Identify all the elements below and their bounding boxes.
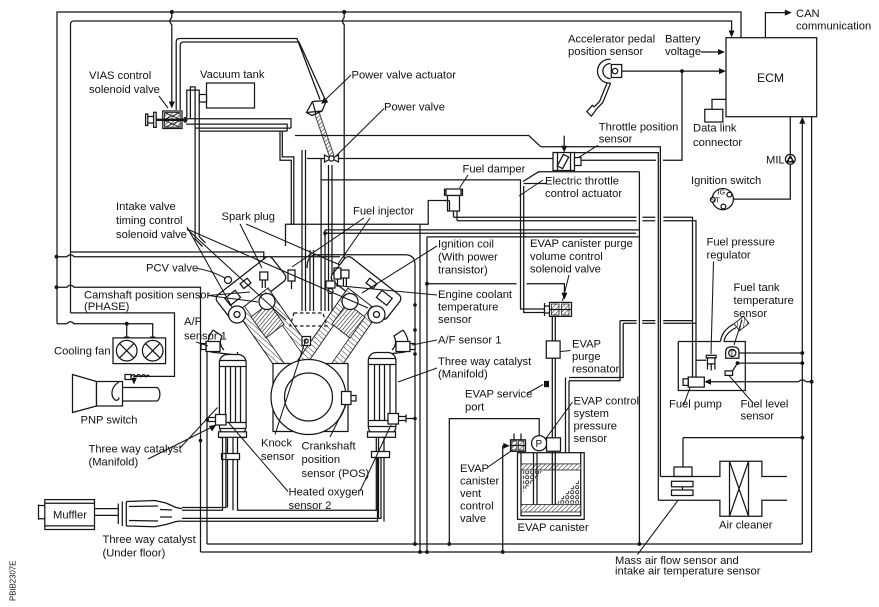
svg-text:Three way catalyst: Three way catalyst bbox=[438, 356, 532, 368]
svg-text:sensor (POS): sensor (POS) bbox=[302, 468, 370, 480]
svg-text:Fuel tank: Fuel tank bbox=[734, 282, 780, 294]
svg-text:solenoid valve: solenoid valve bbox=[89, 84, 160, 96]
svg-text:EVAP: EVAP bbox=[460, 463, 489, 475]
svg-text:regulator: regulator bbox=[707, 250, 751, 262]
svg-text:Throttle position: Throttle position bbox=[599, 122, 679, 134]
svg-text:Camshaft position sensor: Camshaft position sensor bbox=[84, 290, 211, 302]
svg-text:control actuator: control actuator bbox=[545, 188, 622, 200]
svg-text:EVAP canister purge: EVAP canister purge bbox=[530, 238, 633, 250]
svg-text:CAN: CAN bbox=[796, 8, 820, 20]
svg-text:(PHASE): (PHASE) bbox=[84, 301, 130, 313]
svg-text:sensor 2: sensor 2 bbox=[289, 500, 332, 512]
svg-text:Fuel damper: Fuel damper bbox=[463, 164, 526, 176]
svg-text:Heated oxygen: Heated oxygen bbox=[289, 487, 364, 499]
svg-text:port: port bbox=[465, 402, 485, 414]
svg-text:A/F sensor 1: A/F sensor 1 bbox=[438, 335, 501, 347]
svg-text:pressure: pressure bbox=[574, 421, 618, 433]
svg-text:A/F: A/F bbox=[184, 316, 202, 328]
svg-text:position: position bbox=[302, 454, 341, 466]
svg-text:EVAP canister: EVAP canister bbox=[518, 522, 589, 534]
svg-text:canister: canister bbox=[460, 476, 499, 488]
svg-text:Ignition coil: Ignition coil bbox=[438, 239, 494, 251]
svg-text:transistor): transistor) bbox=[438, 265, 488, 277]
svg-text:MIL: MIL bbox=[766, 155, 785, 167]
svg-text:temperature: temperature bbox=[438, 302, 498, 314]
svg-text:solenoid valve: solenoid valve bbox=[530, 264, 601, 276]
svg-text:connector: connector bbox=[693, 137, 742, 149]
svg-text:Intake valve: Intake valve bbox=[116, 201, 176, 213]
svg-text:Fuel pump: Fuel pump bbox=[669, 399, 722, 411]
svg-text:sensor: sensor bbox=[438, 314, 472, 326]
svg-text:PBIB2307E: PBIB2307E bbox=[9, 561, 18, 601]
svg-text:EVAP service: EVAP service bbox=[465, 389, 532, 401]
svg-text:Knock: Knock bbox=[261, 438, 292, 450]
svg-text:sensor: sensor bbox=[574, 433, 608, 445]
svg-text:position sensor: position sensor bbox=[568, 46, 644, 58]
svg-text:VIAS control: VIAS control bbox=[89, 70, 151, 82]
svg-text:purge: purge bbox=[572, 351, 601, 363]
svg-text:volume control: volume control bbox=[530, 251, 603, 263]
svg-text:control: control bbox=[460, 501, 494, 513]
svg-text:temperature: temperature bbox=[734, 295, 794, 307]
svg-text:Crankshaft: Crankshaft bbox=[302, 441, 357, 453]
svg-text:sensor: sensor bbox=[599, 134, 633, 146]
svg-text:Fuel level: Fuel level bbox=[741, 399, 789, 411]
svg-text:Three way catalyst: Three way catalyst bbox=[103, 534, 197, 546]
svg-text:(Under floor): (Under floor) bbox=[103, 548, 166, 560]
svg-text:(With power: (With power bbox=[438, 252, 498, 264]
svg-text:P: P bbox=[536, 439, 543, 450]
svg-text:ST: ST bbox=[711, 196, 721, 205]
svg-text:Muffler: Muffler bbox=[53, 510, 87, 522]
svg-text:timing control: timing control bbox=[116, 215, 183, 227]
svg-text:Spark plug: Spark plug bbox=[222, 211, 276, 223]
svg-text:communication: communication bbox=[796, 21, 871, 33]
svg-text:PNP switch: PNP switch bbox=[81, 415, 138, 427]
svg-text:Accelerator pedal: Accelerator pedal bbox=[568, 34, 655, 46]
svg-text:resonator: resonator bbox=[572, 364, 620, 376]
svg-text:Data link: Data link bbox=[693, 123, 737, 135]
svg-text:Electric throttle: Electric throttle bbox=[545, 176, 619, 188]
svg-text:EVAP control: EVAP control bbox=[574, 396, 640, 408]
svg-text:Cooling fan: Cooling fan bbox=[54, 346, 111, 358]
svg-text:Fuel injector: Fuel injector bbox=[353, 206, 414, 218]
svg-text:sensor: sensor bbox=[741, 411, 775, 423]
svg-text:intake air temperature sensor: intake air temperature sensor bbox=[615, 566, 761, 578]
svg-text:Air cleaner: Air cleaner bbox=[719, 520, 773, 532]
svg-text:sensor: sensor bbox=[734, 308, 768, 320]
svg-text:Power valve: Power valve bbox=[384, 102, 445, 114]
svg-text:T: T bbox=[730, 350, 735, 359]
svg-text:Three way catalyst: Three way catalyst bbox=[89, 444, 183, 456]
svg-text:valve: valve bbox=[460, 513, 486, 525]
svg-text:Power valve actuator: Power valve actuator bbox=[352, 70, 457, 82]
svg-text:vent: vent bbox=[460, 488, 482, 500]
svg-text:voltage: voltage bbox=[665, 46, 701, 58]
svg-text:Engine coolant: Engine coolant bbox=[438, 289, 513, 301]
svg-text:EVAP: EVAP bbox=[572, 339, 601, 351]
svg-text:(Manifold): (Manifold) bbox=[89, 457, 139, 469]
svg-text:Battery: Battery bbox=[665, 34, 701, 46]
svg-text:solenoid valve: solenoid valve bbox=[116, 229, 187, 241]
svg-text:Vacuum tank: Vacuum tank bbox=[200, 69, 265, 81]
svg-text:ECM: ECM bbox=[757, 71, 784, 85]
svg-text:system: system bbox=[574, 408, 609, 420]
svg-text:Ignition switch: Ignition switch bbox=[691, 175, 761, 187]
svg-text:PCV valve: PCV valve bbox=[146, 263, 198, 275]
svg-text:sensor 1: sensor 1 bbox=[184, 331, 227, 343]
svg-text:(Manifold): (Manifold) bbox=[438, 369, 488, 381]
svg-text:Fuel pressure: Fuel pressure bbox=[707, 237, 775, 249]
svg-text:sensor: sensor bbox=[261, 451, 295, 463]
